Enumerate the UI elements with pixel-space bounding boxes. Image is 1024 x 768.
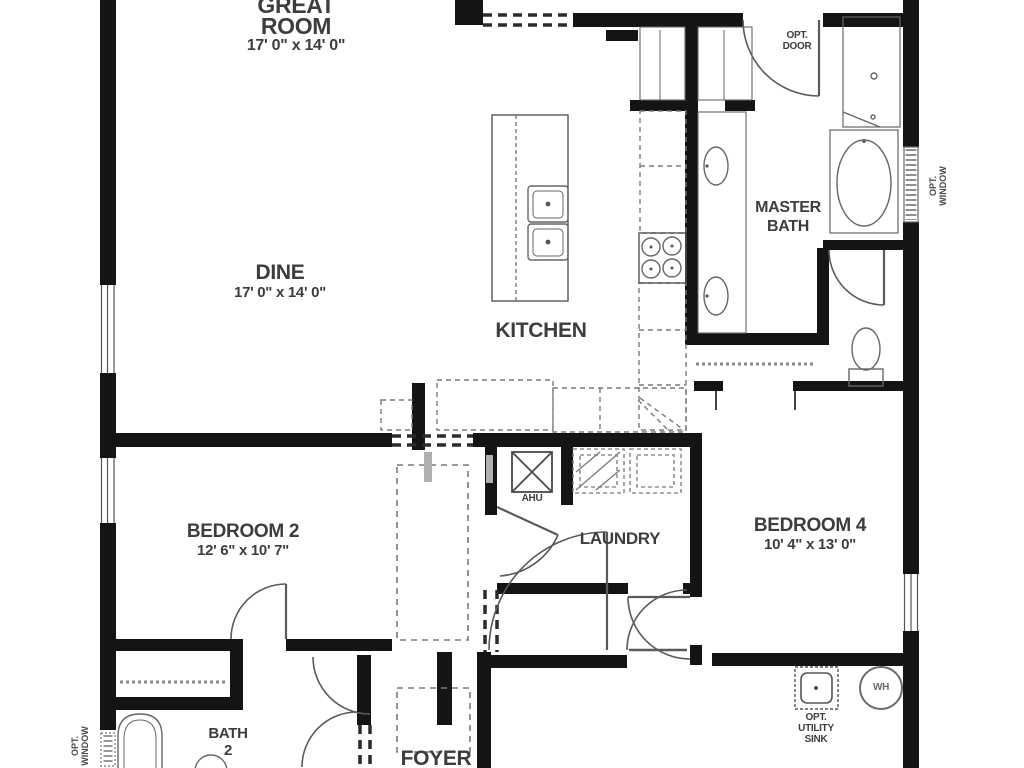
- bedroom2-label: BEDROOM 2 12' 6" x 10' 7": [187, 522, 299, 559]
- bath2-line1: BATH: [208, 725, 247, 742]
- window-dine-left: [102, 285, 115, 373]
- bedroom4-dims: 10' 4" x 13' 0": [754, 536, 866, 553]
- water-heater-label: WH: [873, 682, 889, 693]
- bath2-line2: 2: [208, 742, 247, 759]
- floorplan-drawing: [0, 0, 1024, 768]
- opt-utility-sink-line3: SINK: [798, 734, 834, 745]
- interior-walls: [116, 25, 903, 768]
- bath2-label: BATH 2: [208, 725, 247, 759]
- foyer-label: FOYER: [401, 748, 472, 768]
- laundry-label: LAUNDRY: [580, 530, 660, 548]
- bedroom2-name: BEDROOM 2: [187, 522, 299, 542]
- ahu-label: AHU: [522, 493, 543, 504]
- utility-sink-symbol: [795, 667, 838, 709]
- opt-window-left-label: OPT. WINDOW: [70, 726, 90, 766]
- windows: [101, 147, 918, 766]
- bedroom2-door: [231, 584, 286, 639]
- dine-dims: 17' 0" x 14' 0": [234, 284, 326, 301]
- shower: [843, 17, 900, 127]
- kitchen-island: [492, 115, 568, 301]
- kitchen-label: KITCHEN: [495, 320, 586, 342]
- water-closet-door: [829, 250, 884, 305]
- master-bath-line1: MASTER: [755, 198, 821, 217]
- master-bath-label: MASTER BATH: [755, 198, 821, 236]
- dryer: [630, 449, 681, 493]
- stove: [639, 233, 686, 283]
- great-room-line2: ROOM: [247, 16, 345, 37]
- master-tub: [830, 130, 898, 233]
- opt-door-line2: DOOR: [783, 41, 812, 52]
- opt-window-left-line1: OPT.: [70, 726, 80, 766]
- foyer-tray-outline: [397, 688, 470, 752]
- opt-utility-sink-line1: OPT.: [798, 712, 834, 723]
- front-entry-door: [627, 590, 687, 650]
- opt-window-masterbath: [904, 147, 918, 222]
- opt-window-left-line2: WINDOW: [80, 726, 90, 766]
- opt-window-right-label: OPT. WINDOW: [928, 166, 948, 206]
- ahu-unit: [512, 452, 552, 492]
- bedroom4-name: BEDROOM 4: [754, 516, 866, 536]
- opt-window-right-line1: OPT.: [928, 166, 938, 206]
- kitchen-bottom-counters: [381, 380, 686, 432]
- bedroom2-dims: 12' 6" x 10' 7": [187, 542, 299, 559]
- opt-window-bath2: [101, 733, 115, 766]
- opt-utility-sink-line2: UTILITY: [798, 723, 834, 734]
- pocket-marker-1: [486, 455, 493, 483]
- vanity: [698, 112, 746, 333]
- window-bedroom2-left: [102, 458, 115, 523]
- great-room-dims: 17' 0" x 14' 0": [247, 37, 345, 55]
- bath2-tub-inner: [124, 720, 156, 768]
- master-toilet: [849, 328, 883, 386]
- dine-name: DINE: [234, 262, 326, 284]
- opt-window-right-line2: WINDOW: [938, 166, 948, 206]
- hall-optional-outline: [397, 465, 468, 640]
- washer: [573, 449, 624, 493]
- ahu-closet-door: [497, 507, 558, 576]
- kitchen-counter-run: [639, 111, 686, 430]
- opt-door-label: OPT. DOOR: [783, 30, 812, 52]
- bedroom4-label: BEDROOM 4 10' 4" x 13' 0": [754, 516, 866, 553]
- floorplan-page: GREAT ROOM 17' 0" x 14' 0" DINE 17' 0" x…: [0, 0, 1024, 768]
- bath2-tub: [118, 714, 162, 768]
- opt-door-line1: OPT.: [783, 30, 812, 41]
- pocket-marker-2: [424, 452, 432, 482]
- island-double-sink: [528, 186, 568, 260]
- laundry-fixtures: [424, 449, 681, 493]
- optional-outlines: [397, 465, 470, 752]
- great-room-label: GREAT ROOM 17' 0" x 14' 0": [247, 0, 345, 55]
- wall-jambs: [716, 391, 795, 410]
- master-bath-line2: BATH: [755, 217, 821, 236]
- window-bedroom4-right: [905, 574, 918, 631]
- dine-label: DINE 17' 0" x 14' 0": [234, 262, 326, 301]
- opt-utility-sink-label: OPT. UTILITY SINK: [798, 712, 834, 745]
